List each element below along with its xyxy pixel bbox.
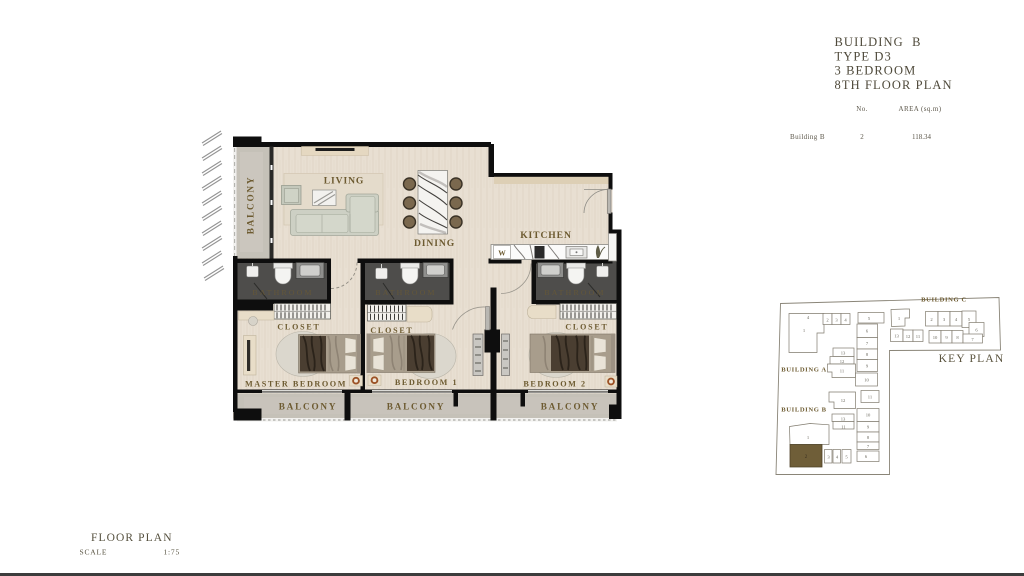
svg-text:TYPE D3: TYPE D3 — [835, 49, 892, 63]
svg-text:11: 11 — [868, 395, 873, 400]
svg-text:BALCONY: BALCONY — [387, 402, 446, 412]
svg-text:BATHROOM: BATHROOM — [252, 288, 313, 297]
svg-text:BALCONY: BALCONY — [541, 402, 600, 412]
svg-text:CLOSET: CLOSET — [370, 326, 413, 335]
svg-text:Building B: Building B — [790, 133, 825, 141]
svg-text:1:75: 1:75 — [164, 548, 181, 557]
svg-text:BATHROOM: BATHROOM — [375, 288, 436, 297]
svg-text:KITCHEN: KITCHEN — [520, 230, 572, 241]
svg-text:AREA (sq.m): AREA (sq.m) — [899, 105, 942, 113]
svg-text:11: 11 — [841, 425, 846, 430]
svg-text:13: 13 — [841, 351, 846, 356]
svg-text:BATHROOM: BATHROOM — [544, 288, 605, 297]
svg-text:2: 2 — [860, 133, 864, 141]
svg-text:SCALE: SCALE — [80, 548, 108, 557]
svg-text:13: 13 — [894, 334, 899, 339]
svg-text:13: 13 — [841, 417, 846, 422]
svg-text:10: 10 — [933, 335, 938, 340]
svg-text:BUILDING C: BUILDING C — [921, 297, 967, 304]
svg-text:12: 12 — [840, 359, 845, 364]
svg-text:CLOSET: CLOSET — [565, 323, 608, 332]
svg-text:BALCONY: BALCONY — [279, 402, 338, 412]
svg-text:118.34: 118.34 — [912, 133, 931, 141]
svg-text:BUILDING B: BUILDING B — [781, 407, 826, 414]
svg-text:LIVING: LIVING — [324, 176, 365, 187]
svg-text:BALCONY: BALCONY — [246, 176, 256, 235]
svg-text:8TH FLOOR PLAN: 8TH FLOOR PLAN — [835, 78, 953, 92]
svg-text:MASTER BEDROOM: MASTER BEDROOM — [245, 380, 347, 389]
svg-text:FLOOR PLAN: FLOOR PLAN — [91, 532, 173, 544]
svg-text:BUILDING A: BUILDING A — [781, 367, 826, 374]
svg-text:CLOSET: CLOSET — [277, 323, 320, 332]
svg-text:BUILDING B: BUILDING B — [835, 35, 922, 49]
svg-text:No.: No. — [856, 105, 868, 113]
svg-text:12: 12 — [906, 334, 911, 339]
svg-text:12: 12 — [841, 398, 846, 403]
svg-text:BEDROOM 2: BEDROOM 2 — [523, 380, 586, 389]
svg-text:10: 10 — [864, 378, 869, 383]
svg-text:10: 10 — [866, 413, 871, 418]
svg-text:W: W — [498, 249, 506, 258]
svg-text:DINING: DINING — [414, 238, 455, 249]
svg-text:KEY PLAN: KEY PLAN — [939, 353, 1005, 365]
svg-text:BEDROOM 1: BEDROOM 1 — [395, 378, 458, 387]
svg-text:3 BEDROOM: 3 BEDROOM — [835, 64, 917, 78]
svg-text:11: 11 — [840, 369, 845, 374]
svg-text:11: 11 — [916, 334, 921, 339]
